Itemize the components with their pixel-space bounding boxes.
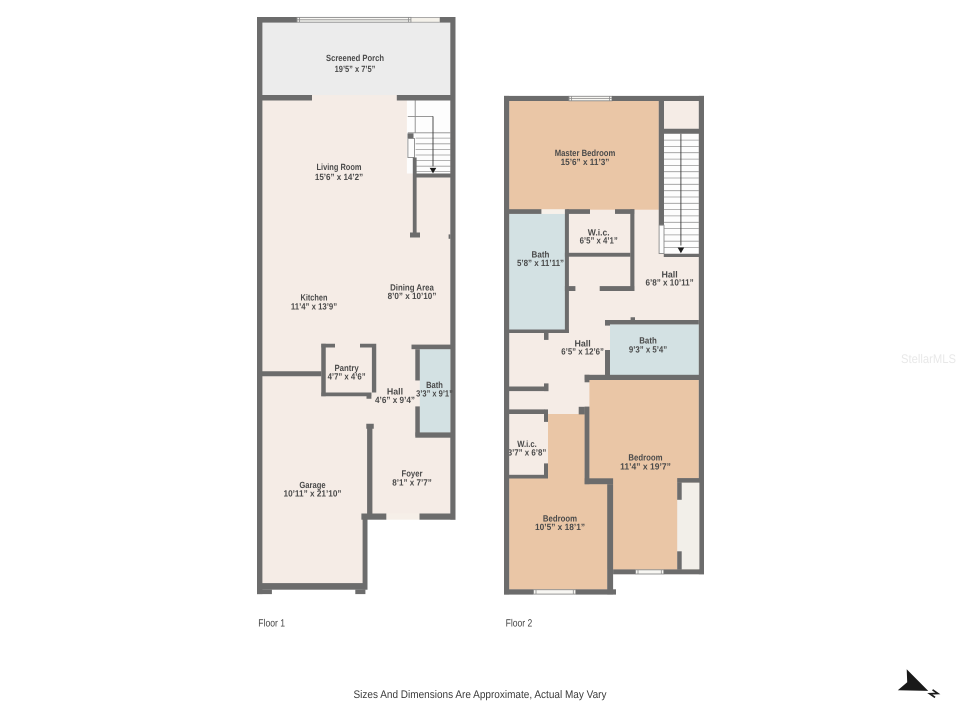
svg-text:6’5” x 12’6”: 6’5” x 12’6”: [561, 346, 604, 356]
svg-text:Screened Porch: Screened Porch: [326, 53, 384, 63]
svg-text:8’1” x 7’7”: 8’1” x 7’7”: [392, 477, 432, 487]
svg-text:8’0” x 10’10”: 8’0” x 10’10”: [388, 291, 437, 301]
svg-text:6’5” x 4’1”: 6’5” x 4’1”: [580, 235, 618, 245]
svg-text:19’5” x 7’5”: 19’5” x 7’5”: [335, 64, 376, 74]
svg-text:Floor 2: Floor 2: [506, 618, 533, 630]
svg-text:Sizes And Dimensions Are Appro: Sizes And Dimensions Are Approximate, Ac…: [354, 689, 607, 701]
svg-text:11’4” x 13’9”: 11’4” x 13’9”: [291, 302, 337, 312]
svg-text:Floor 1: Floor 1: [258, 618, 285, 630]
svg-text:5’8” x 11’11”: 5’8” x 11’11”: [517, 258, 564, 268]
svg-text:4’6” x 9’4”: 4’6” x 9’4”: [375, 395, 415, 405]
svg-text:15’6” x 14’2”: 15’6” x 14’2”: [315, 172, 363, 182]
svg-text:StellarMLS: StellarMLS: [901, 352, 956, 366]
svg-text:10’11” x 21’10”: 10’11” x 21’10”: [284, 488, 342, 498]
svg-text:4’7” x 4’6”: 4’7” x 4’6”: [328, 371, 366, 381]
svg-text:10’5” x 18’1”: 10’5” x 18’1”: [535, 522, 585, 532]
svg-text:Living Room: Living Room: [317, 162, 362, 172]
svg-text:3’7” x 6’8”: 3’7” x 6’8”: [508, 448, 547, 458]
svg-text:11’4” x 19’7”: 11’4” x 19’7”: [620, 462, 671, 472]
svg-text:3’3” x 9’1”: 3’3” x 9’1”: [416, 389, 453, 399]
svg-text:9’3” x 5’4”: 9’3” x 5’4”: [629, 344, 667, 354]
svg-text:15’6” x 11’3”: 15’6” x 11’3”: [561, 157, 610, 167]
svg-text:6’8” x 10’11”: 6’8” x 10’11”: [645, 278, 693, 288]
